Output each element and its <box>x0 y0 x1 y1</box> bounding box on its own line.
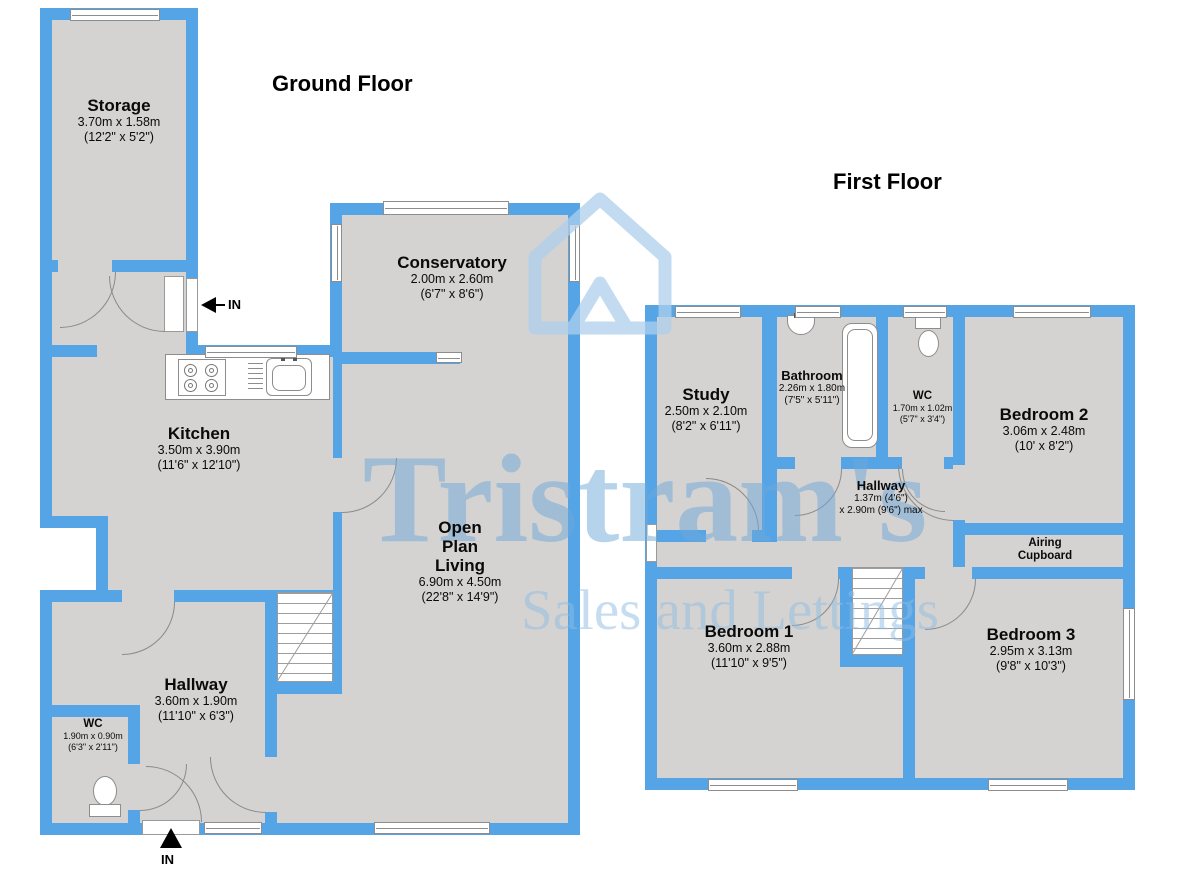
sink-drainer-icon <box>248 363 263 391</box>
room-dims-metric: 1.37m (4'6") <box>818 493 944 505</box>
room-label-bedroom1: Bedroom 1 3.60m x 2.88m (11'10" x 9'5") <box>669 622 829 671</box>
room-dims-imperial: (10' x 8'2") <box>964 439 1124 454</box>
bedroom3-side-window <box>1123 608 1135 700</box>
room-label-hallway-first: Hallway 1.37m (4'6") x 2.90m (9'6") max <box>818 478 944 517</box>
room-name: Kitchen <box>109 424 289 443</box>
front-entrance-label: IN <box>161 852 174 867</box>
stove-icon <box>178 359 226 396</box>
stove-burner-icon <box>184 364 197 377</box>
living-window <box>374 822 490 834</box>
room-dims-imperial: (11'10" x 9'5") <box>669 656 829 671</box>
room-dims-metric: 3.60m x 1.90m <box>116 694 276 709</box>
wc-door-opening <box>128 764 140 810</box>
wall <box>52 345 97 357</box>
room-label-bathroom: Bathroom 2.26m x 1.80m (7'5" x 5'11") <box>748 368 876 407</box>
room-name: Hallway <box>818 478 944 493</box>
wall <box>40 516 98 528</box>
conservatory-inner-window <box>436 352 462 363</box>
conservatory-window <box>383 201 509 215</box>
toilet-cistern-icon <box>915 317 941 329</box>
bedroom3-window <box>988 779 1068 791</box>
toilet-cistern-icon <box>89 804 121 817</box>
room-dims-imperial: x 2.90m (9'6") max <box>818 505 944 517</box>
room-label-conservatory: Conservatory 2.00m x 2.60m (6'7" x 8'6") <box>367 253 537 302</box>
hallway-window <box>204 822 262 834</box>
room-label-kitchen: Kitchen 3.50m x 3.90m (11'6" x 12'10") <box>109 424 289 473</box>
room-dims-metric: 6.90m x 4.50m <box>395 575 525 590</box>
wc-first-window <box>903 306 947 318</box>
room-dims-metric: 3.70m x 1.58m <box>49 115 189 130</box>
room-dims-imperial: (7'5" x 5'11") <box>748 395 876 407</box>
floorplan: IN IN <box>0 0 1200 873</box>
conservatory-opening <box>460 352 568 364</box>
room-label-airing-cupboard: Airing Cupboard <box>1010 537 1080 563</box>
room-label-bedroom2: Bedroom 2 3.06m x 2.48m (10' x 8'2") <box>964 405 1124 454</box>
bathroom-window <box>795 306 841 318</box>
room-name: Open Plan Living <box>427 518 493 575</box>
room-name: Conservatory <box>367 253 537 272</box>
room-dims-imperial: (5'7" x 3'4") <box>875 414 970 425</box>
sink-basin-icon <box>272 365 306 391</box>
room-dims-metric: 1.70m x 1.02m <box>875 403 970 414</box>
room-dims-imperial: (8'2" x 6'11") <box>638 419 774 434</box>
ground-floor-title: Ground Floor <box>272 71 413 97</box>
side-entrance-label: IN <box>228 297 241 312</box>
exterior-notch <box>40 528 96 590</box>
bedroom1-window <box>708 779 798 791</box>
room-dims-imperial: (6'7" x 8'6") <box>367 287 537 302</box>
room-dims-imperial: (22'8" x 14'9") <box>395 590 525 605</box>
room-name: Airing Cupboard <box>1010 537 1080 563</box>
room-label-hallway-ground: Hallway 3.60m x 1.90m (11'10" x 6'3") <box>116 675 276 724</box>
entrance-arrow-line <box>216 304 225 306</box>
stove-burner-icon <box>184 379 197 392</box>
hallway-living-door-opening <box>265 757 277 812</box>
room-label-wc-ground: WC 1.90m x 0.90m (6'3" x 2'11") <box>43 718 143 753</box>
under-stairs-fill <box>277 694 342 823</box>
stove-burner-icon <box>205 379 218 392</box>
room-name: WC <box>43 718 143 731</box>
room-dims-imperial: (6'3" x 2'11") <box>43 742 143 753</box>
room-dims-metric: 2.95m x 3.13m <box>951 644 1111 659</box>
room-label-bedroom3: Bedroom 3 2.95m x 3.13m (9'8" x 10'3") <box>951 625 1111 674</box>
room-label-storage: Storage 3.70m x 1.58m (12'2" x 5'2") <box>49 96 189 145</box>
room-dims-metric: 3.50m x 3.90m <box>109 443 289 458</box>
room-dims-metric: 3.60m x 2.88m <box>669 641 829 656</box>
room-name: Bedroom 2 <box>964 405 1124 424</box>
first-floor-title: First Floor <box>833 169 942 195</box>
side-entrance-door-gap <box>186 278 198 332</box>
wall <box>96 516 108 590</box>
room-dims-imperial: (9'8" x 10'3") <box>951 659 1111 674</box>
kitchen-window <box>205 346 297 358</box>
room-name: Bathroom <box>748 368 876 383</box>
room-label-wc-first: WC 1.70m x 1.02m (5'7" x 3'4") <box>875 390 970 425</box>
room-dims-imperial: (12'2" x 5'2") <box>49 130 189 145</box>
stove-burner-icon <box>205 364 218 377</box>
room-dims-metric: 3.06m x 2.48m <box>964 424 1124 439</box>
storage-door-opening <box>58 260 112 272</box>
bedroom2-window <box>1013 306 1091 318</box>
room-name: Hallway <box>116 675 276 694</box>
storage-window <box>70 9 160 21</box>
room-dims-metric: 1.90m x 0.90m <box>43 731 143 742</box>
side-entrance-door-leaf <box>164 276 184 332</box>
toilet-icon <box>93 776 117 806</box>
kitchen-hallway-door-opening <box>122 590 174 602</box>
entrance-arrow-icon <box>160 828 182 848</box>
room-dims-imperial: (11'6" x 12'10") <box>109 458 289 473</box>
room-label-open-plan-living: Open Plan Living 6.90m x 4.50m (22'8" x … <box>395 518 525 605</box>
room-name: Bedroom 3 <box>951 625 1111 644</box>
room-name: Bedroom 1 <box>669 622 829 641</box>
toilet-icon <box>918 330 939 357</box>
room-name: Storage <box>49 96 189 115</box>
room-dims-metric: 2.00m x 2.60m <box>367 272 537 287</box>
entrance-arrow-icon <box>201 297 216 313</box>
room-name: WC <box>875 390 970 403</box>
room-dims-metric: 2.26m x 1.80m <box>748 383 876 395</box>
conservatory-side-window <box>331 224 342 282</box>
